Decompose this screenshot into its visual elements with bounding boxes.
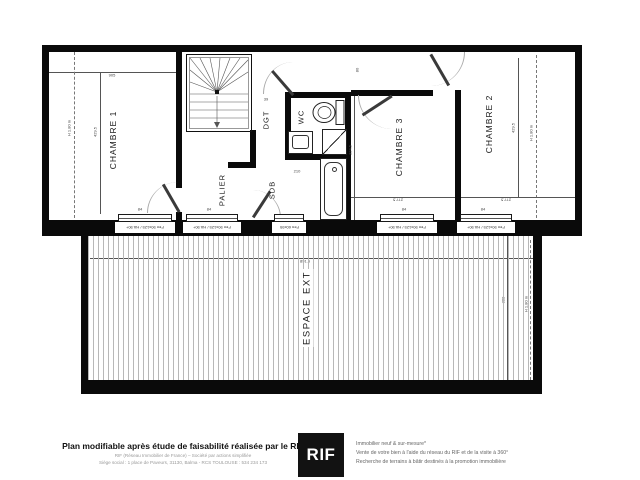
outer-wall-left — [42, 45, 49, 236]
footer-company-lines: RIF (Réseau Immobilier de France) – Soci… — [40, 453, 326, 466]
footer-service-line2: Vente de votre bien à l'aide du réseau d… — [356, 449, 620, 458]
outer-wall-top — [42, 45, 582, 52]
dim-ch3-height: 324.5 — [348, 145, 353, 155]
wall-wc-top — [285, 92, 351, 98]
dim-door-a: 80 — [355, 68, 360, 72]
dim-line-ch1-height — [100, 72, 101, 214]
room-label-palier: PALIER — [218, 174, 227, 206]
dim-window-2: 84 — [207, 207, 211, 212]
room-label-wc: WC — [297, 110, 306, 125]
wall-sdb-jog — [228, 162, 256, 168]
bathtub-drain-icon — [332, 167, 337, 172]
washbasin — [288, 131, 313, 154]
window-label-chambre1-a: Fen 90x125 / HA 90+ — [115, 222, 175, 233]
dim-ch3-width: 277.5 — [393, 198, 403, 203]
window-label-sdb: Fen 60x95 — [272, 222, 306, 233]
dim-ch1-height: 429.5 — [93, 127, 98, 137]
footer-title: Plan modifiable après étude de faisabili… — [40, 441, 326, 451]
rif-logo: RIF — [298, 433, 344, 477]
room-label-chambre1: CHAMBRE 1 — [108, 111, 118, 170]
dim-ch1-width: 905 — [109, 73, 116, 78]
footer-company-line1: RIF (Réseau Immobilier de France) – Soci… — [40, 453, 326, 460]
wall-chambre1-stub — [176, 212, 182, 220]
window-sdb — [274, 214, 304, 222]
dim-sdb-width: 210 — [294, 169, 301, 174]
room-label-chambre2: CHAMBRE 2 — [484, 95, 494, 154]
footer-company-line2: Siège social : 1 place de Paveurs, 31130… — [40, 460, 326, 467]
rif-logo-text: RIF — [307, 445, 336, 465]
room-label-chambre3: CHAMBRE 3 — [394, 118, 404, 177]
dim-window-4: 84 — [481, 207, 485, 212]
shower-duct — [322, 129, 347, 155]
window-chambre3 — [380, 214, 434, 222]
dim-line-ch2-width — [461, 197, 575, 198]
terrace-wall-bottom — [81, 380, 542, 394]
dim-ch2-height: 429.5 — [511, 123, 516, 133]
room-label-espace-ext: ESPACE EXT — [301, 269, 314, 347]
footer-left-block: Plan modifiable après étude de faisabili… — [40, 441, 326, 466]
wall-chambre1-right — [176, 52, 182, 188]
terrace-wall-left — [81, 236, 88, 386]
window-label-chambre2: Fen 90x125 / HA 90+ — [457, 222, 515, 233]
terrace-wall-right — [533, 236, 542, 386]
dim-window-1: 84 — [138, 207, 142, 212]
footer-service-line1: Immobilier neuf & sur-mesure* — [356, 440, 620, 449]
wall-chambre2-left — [455, 90, 461, 222]
dim-ch1-headroom: H 1.80 m — [67, 120, 72, 136]
dim-ch2-headroom: H 1.80 m — [529, 125, 534, 141]
staircase — [186, 54, 252, 137]
toilet — [311, 99, 345, 131]
room-label-dgt: DGT — [262, 111, 271, 130]
window-label-chambre1-b: Fen 90x125 / HA 90+ — [183, 222, 241, 233]
room-label-sdb: SDB — [268, 181, 277, 199]
bathtub — [320, 158, 347, 220]
window-label-chambre3: Fen 90x125 / HA 90+ — [377, 222, 437, 233]
window-chambre1-b — [186, 214, 238, 222]
dim-line-ch3-height — [354, 96, 355, 220]
dim-window-3: 84 — [402, 207, 406, 212]
floor-plan-page: Fen 90x125 / HA 90+ Fen 90x125 / HA 90+ … — [0, 0, 640, 480]
dim-ch2-width: 277.5 — [501, 198, 511, 203]
window-chambre1-a — [118, 214, 172, 222]
footer-right-block: Immobilier neuf & sur-mesure* Vente de v… — [356, 440, 620, 467]
headroom-line-ch2 — [536, 55, 537, 218]
headroom-line-ch1 — [74, 52, 75, 218]
toilet-icon — [311, 99, 345, 126]
footer-service-line3: Recherche de terrains à bâtir destinés à… — [356, 458, 620, 467]
dim-door-b: 39 — [264, 97, 268, 102]
dim-line-ch2-height — [518, 58, 519, 197]
outer-wall-right — [575, 45, 582, 236]
staircase-icon — [186, 54, 252, 132]
washbasin-bowl-icon — [292, 135, 309, 149]
window-chambre2 — [460, 214, 512, 222]
